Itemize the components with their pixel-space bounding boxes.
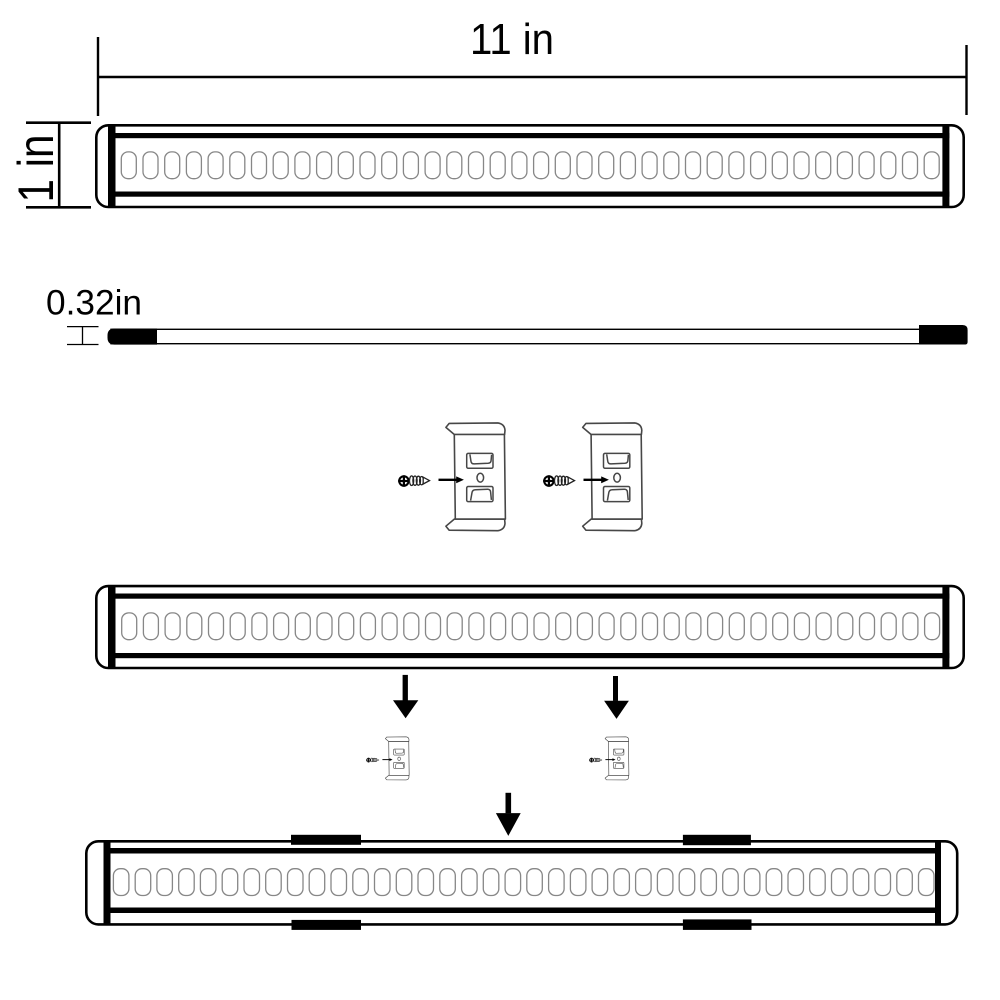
svg-text:11 in: 11 in bbox=[470, 15, 554, 64]
svg-text:1 in: 1 in bbox=[8, 135, 64, 203]
svg-text:0.32in: 0.32in bbox=[46, 284, 142, 323]
